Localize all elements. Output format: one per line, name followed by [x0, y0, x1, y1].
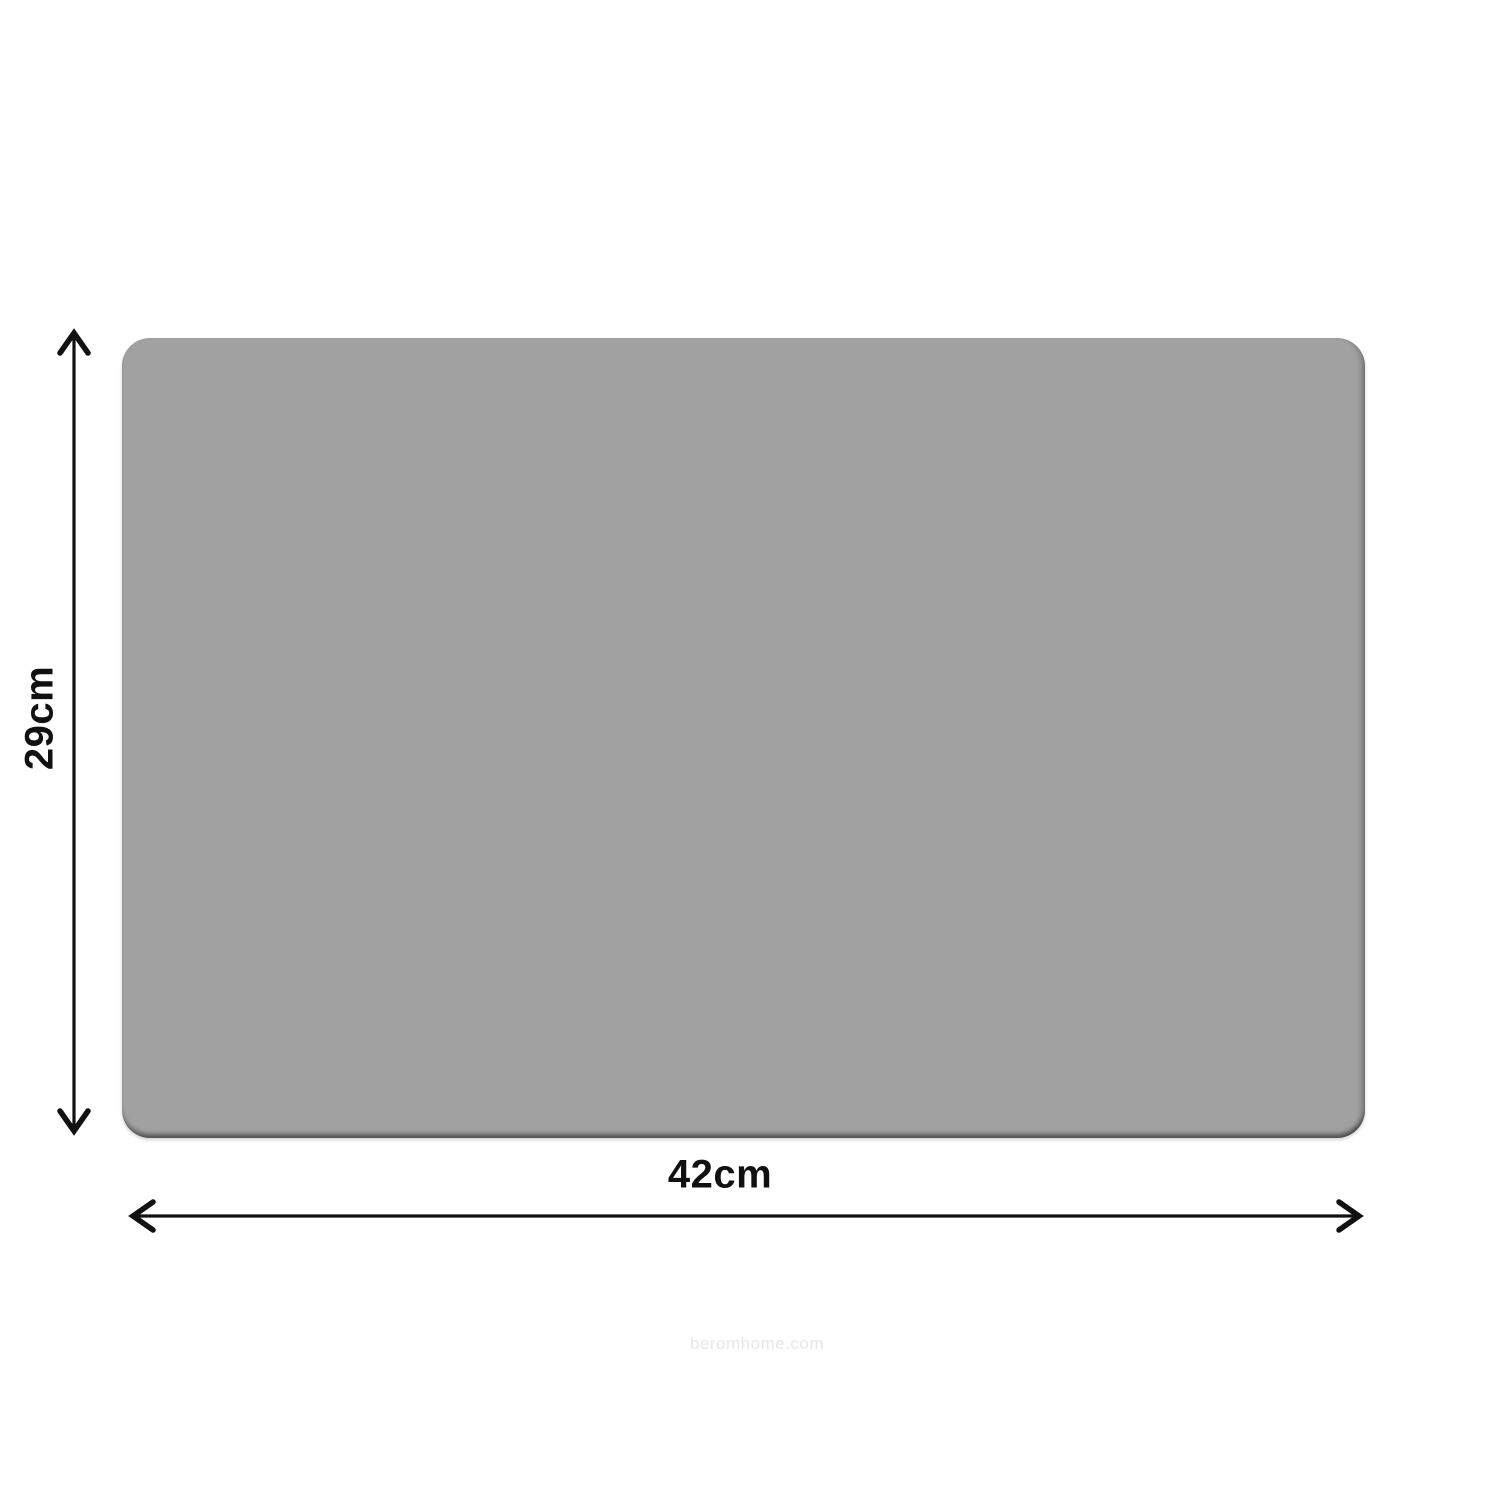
height-dimension-label: 29cm: [18, 666, 63, 770]
diagram-canvas: 29cm 42cm beromhome.com: [0, 0, 1500, 1500]
watermark-text: beromhome.com: [690, 1334, 824, 1354]
placemat-image: [122, 338, 1365, 1138]
height-dimension-arrow: [60, 333, 88, 1131]
width-dimension-arrow: [133, 1202, 1359, 1230]
width-dimension-label: 42cm: [668, 1153, 772, 1198]
